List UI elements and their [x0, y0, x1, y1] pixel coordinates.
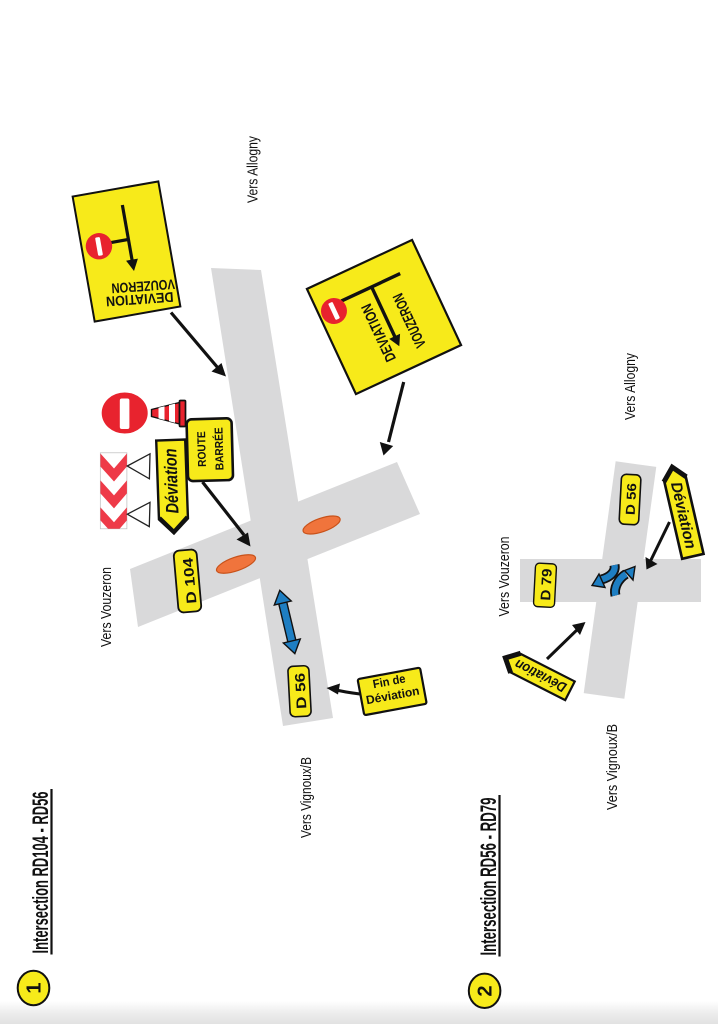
svg-text:Intersection RD104 - RD56: Intersection RD104 - RD56 [28, 792, 53, 954]
svg-text:Vers Vignoux/B: Vers Vignoux/B [298, 757, 315, 838]
svg-text:D 79: D 79 [537, 568, 555, 601]
svg-text:ROUTE: ROUTE [196, 431, 209, 467]
svg-text:Déviation: Déviation [160, 448, 182, 514]
svg-text:Vers Vignoux/B: Vers Vignoux/B [604, 724, 621, 810]
svg-text:Intersection RD56 - RD79: Intersection RD56 - RD79 [476, 798, 501, 956]
svg-text:Vers Vouzeron: Vers Vouzeron [98, 567, 115, 647]
svg-text:Vers Allogny: Vers Allogny [622, 353, 639, 420]
svg-text:Vers Allogny: Vers Allogny [245, 136, 262, 203]
svg-text:BARRÉE: BARRÉE [212, 427, 226, 471]
svg-text:Vers Vouzeron: Vers Vouzeron [496, 537, 513, 617]
svg-text:2: 2 [475, 985, 497, 996]
svg-text:D 56: D 56 [292, 672, 310, 709]
svg-text:1: 1 [24, 982, 46, 993]
svg-text:D 56: D 56 [623, 483, 640, 516]
